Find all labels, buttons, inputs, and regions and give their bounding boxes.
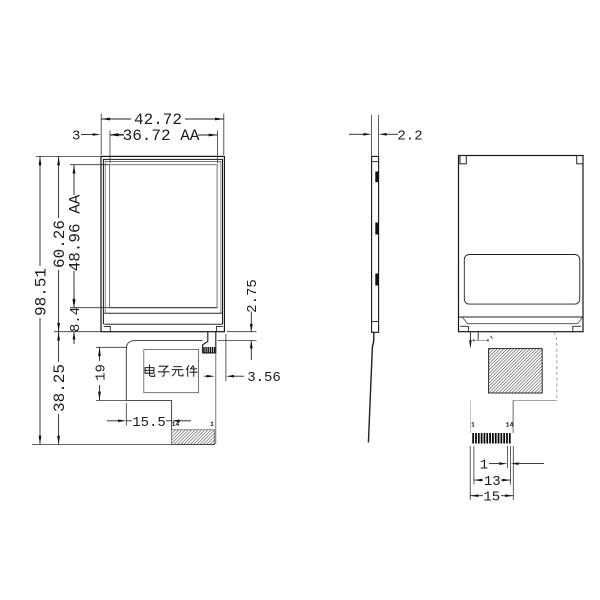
svg-text:8.4: 8.4 bbox=[68, 307, 84, 332]
svg-text:1: 1 bbox=[471, 422, 475, 429]
svg-text:48.96 AA: 48.96 AA bbox=[67, 194, 85, 271]
svg-text:1: 1 bbox=[210, 421, 214, 428]
svg-text:15.5: 15.5 bbox=[132, 415, 166, 431]
svg-text:36.72 AA: 36.72 AA bbox=[123, 127, 200, 145]
svg-text:14: 14 bbox=[172, 421, 180, 428]
svg-text:3.56: 3.56 bbox=[247, 370, 281, 386]
svg-text:2.2: 2.2 bbox=[397, 128, 422, 144]
svg-text:98.51: 98.51 bbox=[33, 268, 51, 316]
svg-text:38.25: 38.25 bbox=[51, 364, 69, 412]
svg-text:3: 3 bbox=[72, 129, 80, 145]
svg-text:1: 1 bbox=[480, 458, 488, 474]
svg-text:13: 13 bbox=[484, 474, 501, 490]
svg-text:19: 19 bbox=[93, 364, 109, 381]
svg-text:2.75: 2.75 bbox=[245, 279, 261, 313]
svg-text:15: 15 bbox=[483, 490, 500, 506]
svg-text:14: 14 bbox=[506, 422, 514, 429]
